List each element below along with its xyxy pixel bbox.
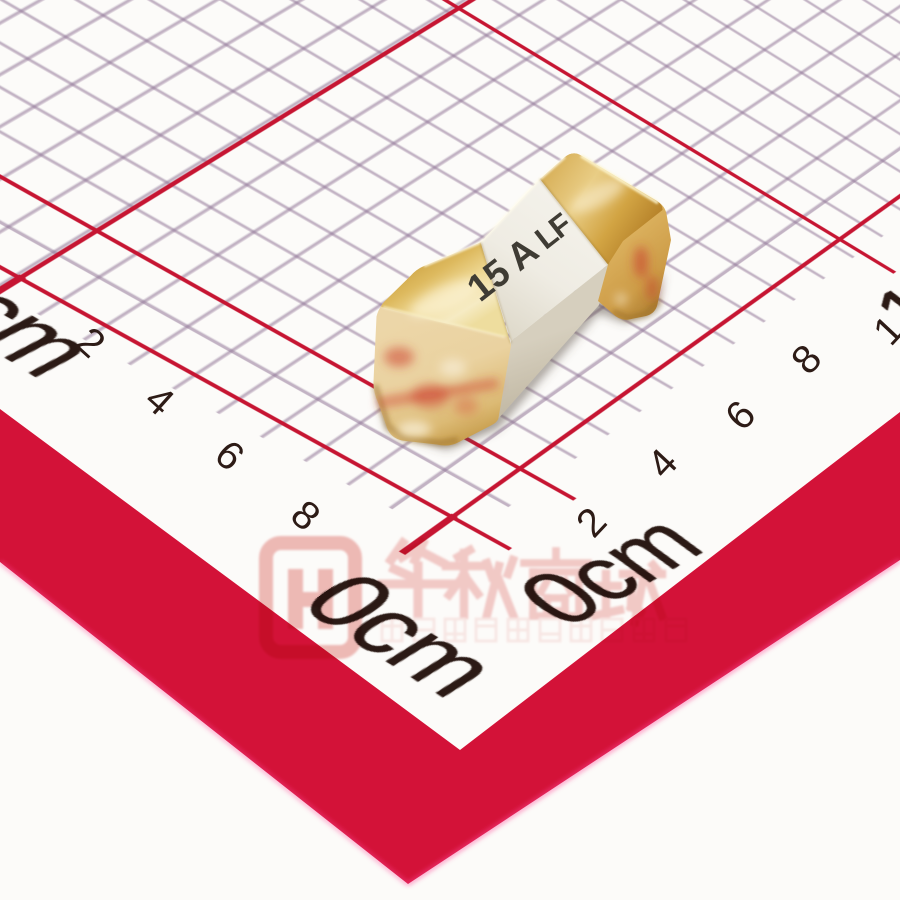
svg-text:2: 2: [67, 319, 113, 367]
svg-text:2: 2: [568, 500, 615, 546]
svg-text:8: 8: [282, 492, 328, 540]
svg-text:4: 4: [639, 441, 686, 487]
svg-text:1: 1: [865, 308, 900, 354]
svg-text:6: 6: [717, 393, 764, 439]
svg-text:6: 6: [206, 432, 252, 480]
svg-text:4: 4: [136, 377, 182, 425]
svg-text:8: 8: [783, 337, 830, 383]
